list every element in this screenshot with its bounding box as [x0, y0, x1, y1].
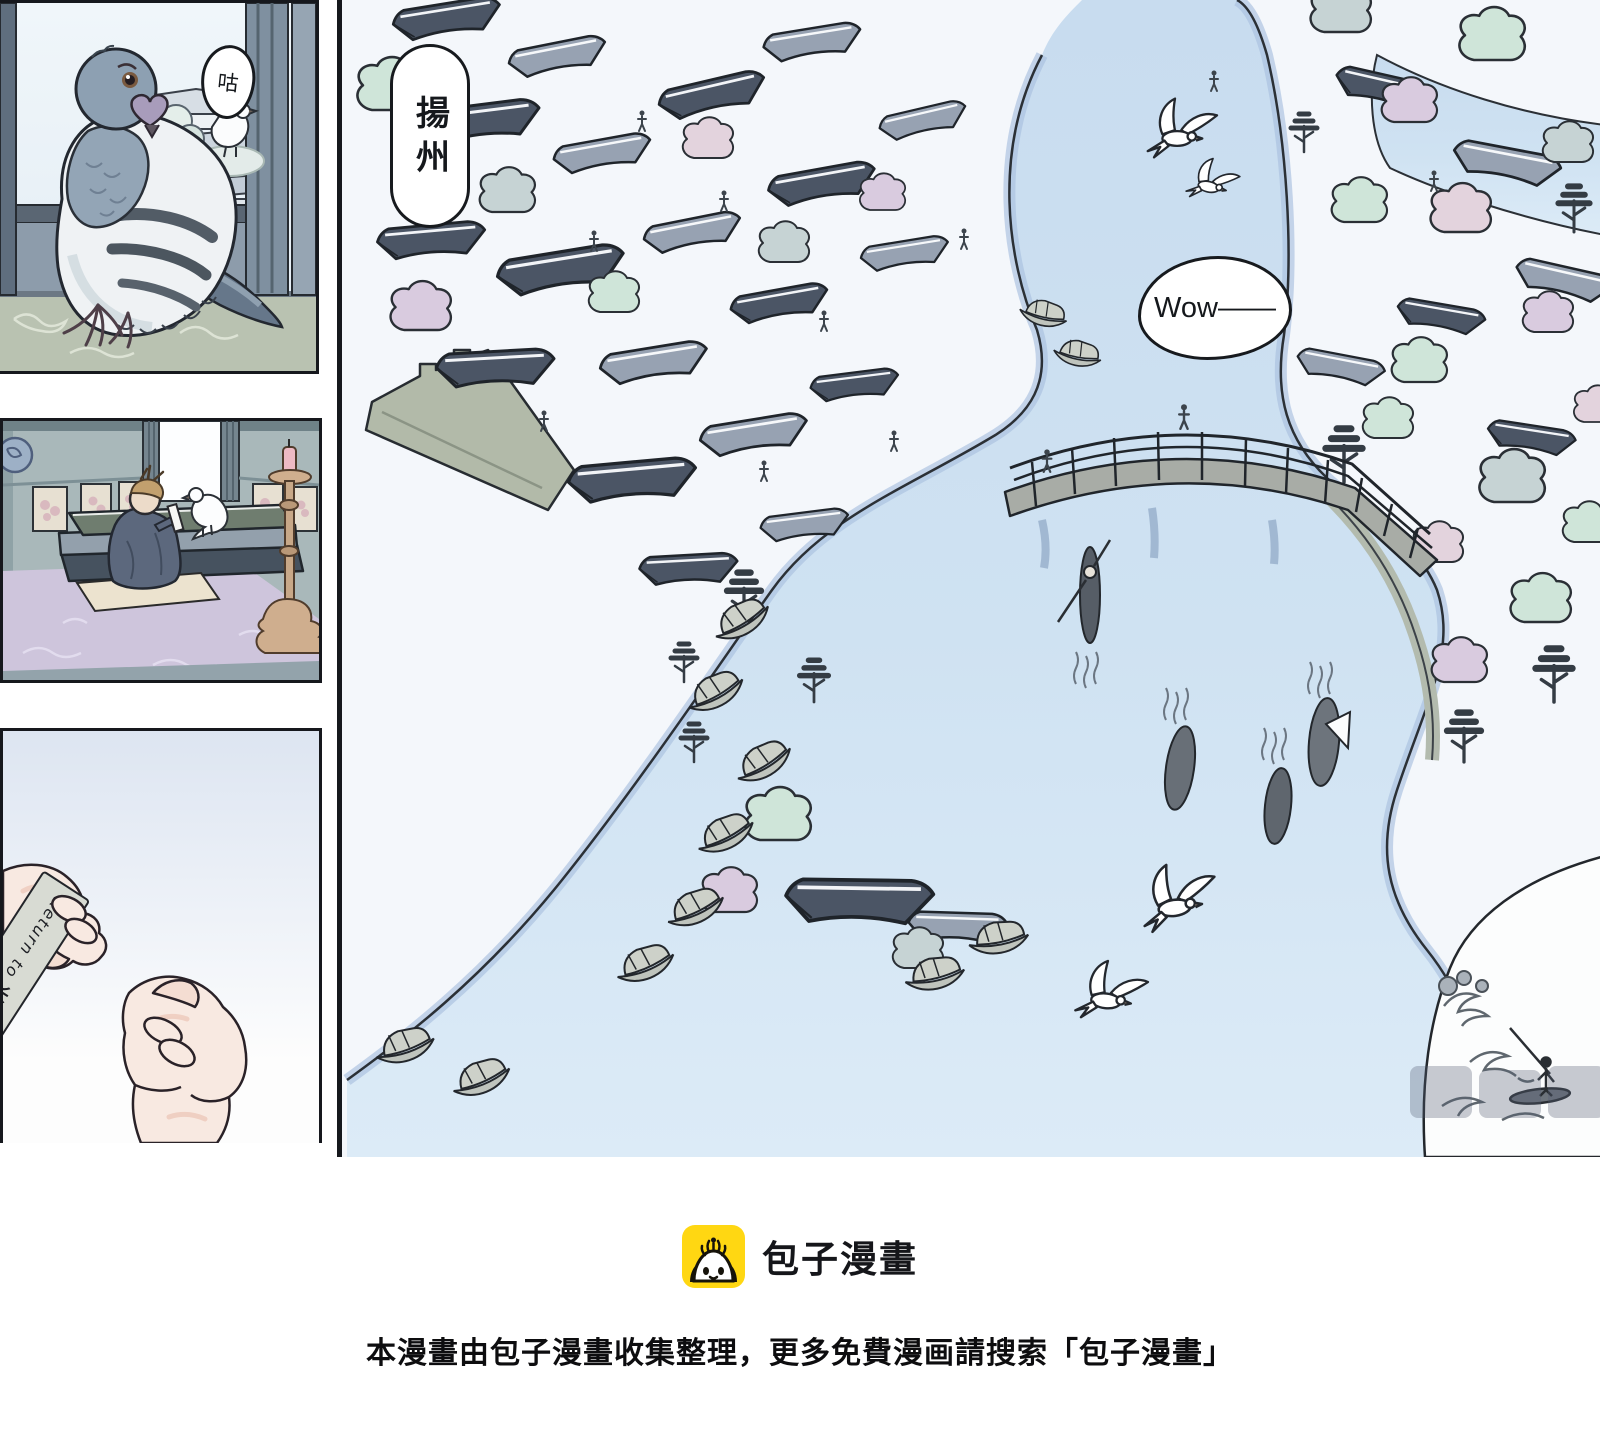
- watermark: [1548, 1066, 1600, 1118]
- comic-page: 咕: [0, 0, 1600, 1440]
- wow-text: Wow——: [1154, 292, 1276, 325]
- wall-medallion: [3, 438, 32, 472]
- pigeon-illustration: [0, 3, 316, 371]
- panel-hands-note: Return to 长安 soon.: [0, 728, 322, 1143]
- watermark: [1479, 1070, 1541, 1118]
- brand-title: 包子漫畫: [762, 1229, 918, 1283]
- place-label-text: 揚州: [406, 95, 455, 183]
- gripping-fingers: [3, 731, 319, 1143]
- coo-text: 咕: [216, 66, 240, 98]
- city-overview-illustration: [342, 0, 1600, 1157]
- baozi-logo-icon: [682, 1225, 745, 1288]
- panel-pigeon-window: 咕: [0, 0, 319, 374]
- room-illustration: [3, 421, 319, 680]
- place-label-bubble: 揚州: [390, 44, 470, 228]
- footer-brand-row: 包子漫畫: [0, 1222, 1600, 1290]
- watermark: [1410, 1066, 1472, 1118]
- notice-text: 本漫畫由包子漫畫收集整理，更多免費漫画請搜索「包子漫畫」: [0, 1328, 1600, 1372]
- panel-room-scene: [0, 418, 322, 683]
- panel-city-overview: 揚州 Wow——: [337, 0, 1600, 1157]
